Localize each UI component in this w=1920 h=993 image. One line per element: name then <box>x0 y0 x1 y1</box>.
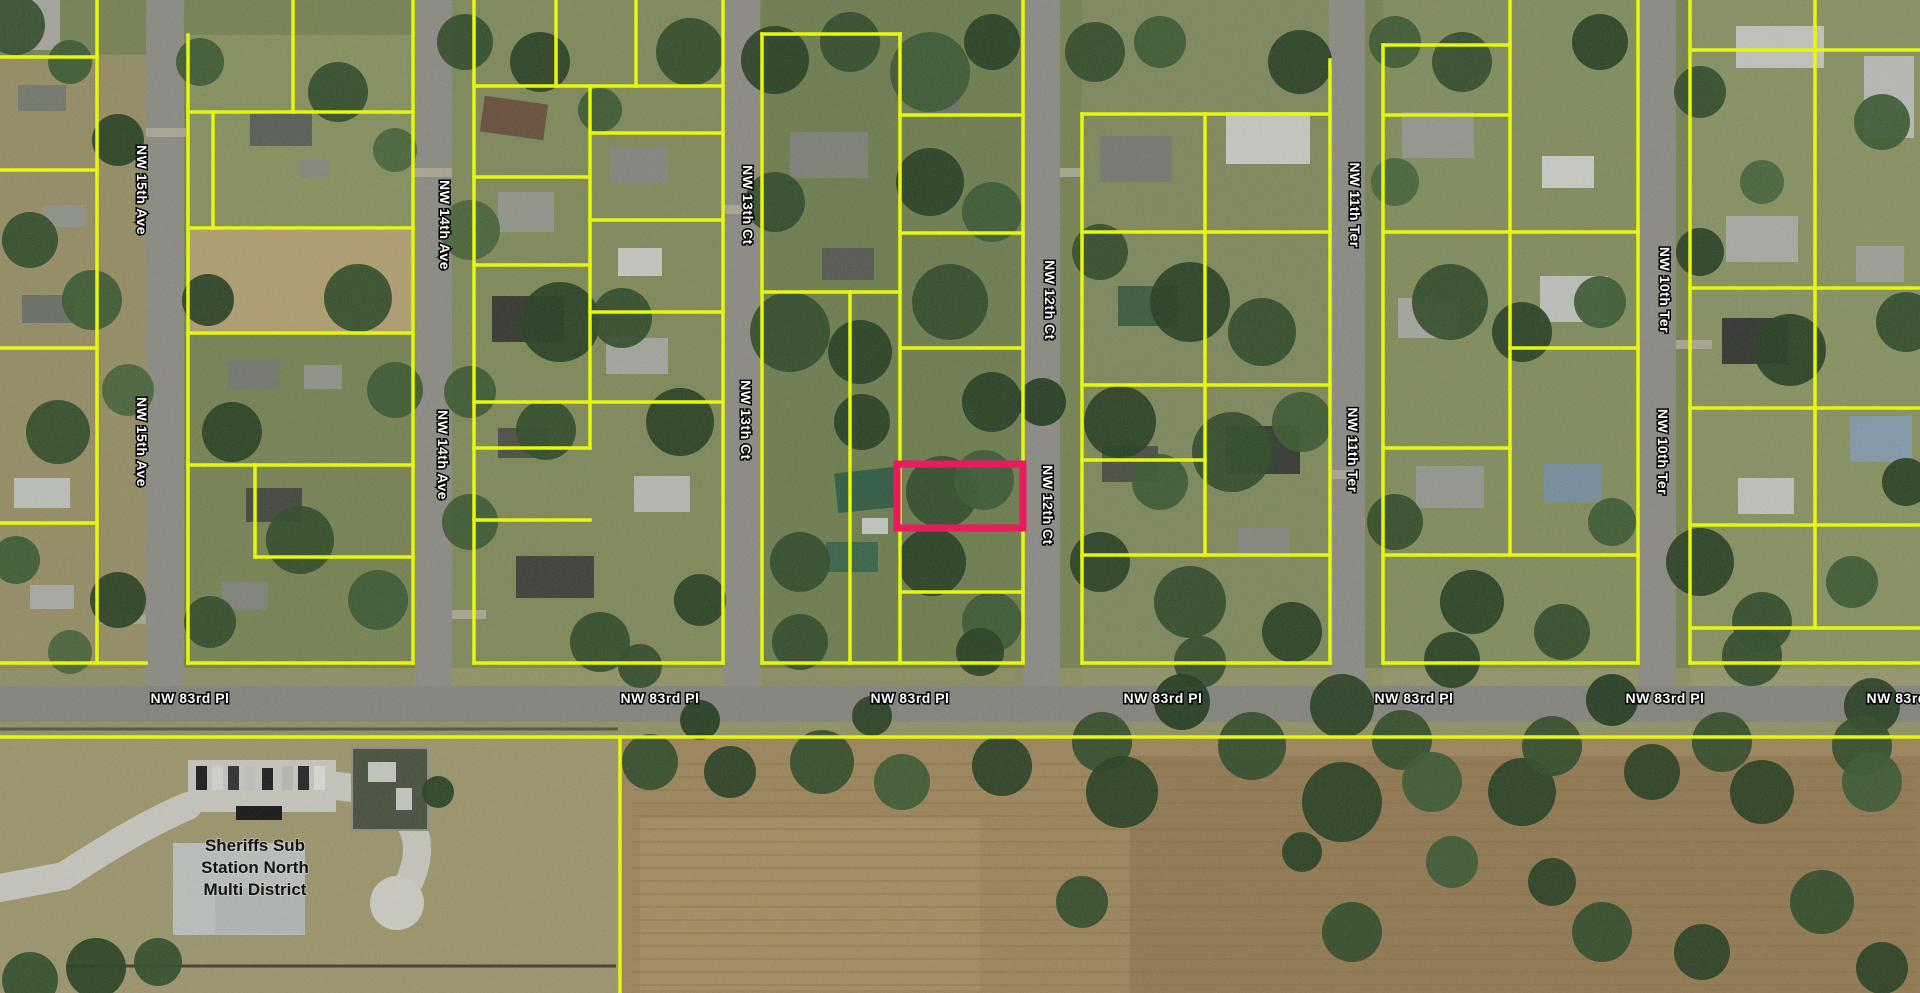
street-label: NW 13th Ct <box>738 380 754 460</box>
street-label: NW 83rd Pl <box>621 690 700 706</box>
poi-label: Sheriffs Sub <box>205 836 305 855</box>
street-label: NW 83rd Pl <box>1626 690 1705 706</box>
street-label: NW 10th Ter <box>1657 247 1673 333</box>
street-label: NW 12th Ct <box>1040 465 1056 545</box>
street-label: NW 83rd Pl <box>871 690 950 706</box>
street-label: NW 14th Ave <box>437 180 453 270</box>
street-label: NW 83rd Pl <box>1867 690 1920 706</box>
street-label: NW 10th Ter <box>1655 409 1671 495</box>
street-label: NW 14th Ave <box>435 410 451 500</box>
poi-label: Station North <box>201 858 309 877</box>
aerial-map[interactable]: NW 15th AveNW 15th AveNW 14th AveNW 14th… <box>0 0 1920 993</box>
street-label: NW 12th Ct <box>1042 260 1058 340</box>
map-viewport[interactable]: NW 15th AveNW 15th AveNW 14th AveNW 14th… <box>0 0 1920 993</box>
street-label: NW 15th Ave <box>134 397 150 487</box>
street-label: NW 13th Ct <box>740 165 756 245</box>
street-label: NW 83rd Pl <box>1375 690 1454 706</box>
street-label: NW 11th Ter <box>1347 162 1363 247</box>
street-label: NW 11th Ter <box>1345 407 1361 492</box>
street-label: NW 15th Ave <box>134 145 150 235</box>
street-label: NW 83rd Pl <box>1124 690 1203 706</box>
poi-label: Multi District <box>204 880 307 899</box>
street-label: NW 83rd Pl <box>151 690 230 706</box>
